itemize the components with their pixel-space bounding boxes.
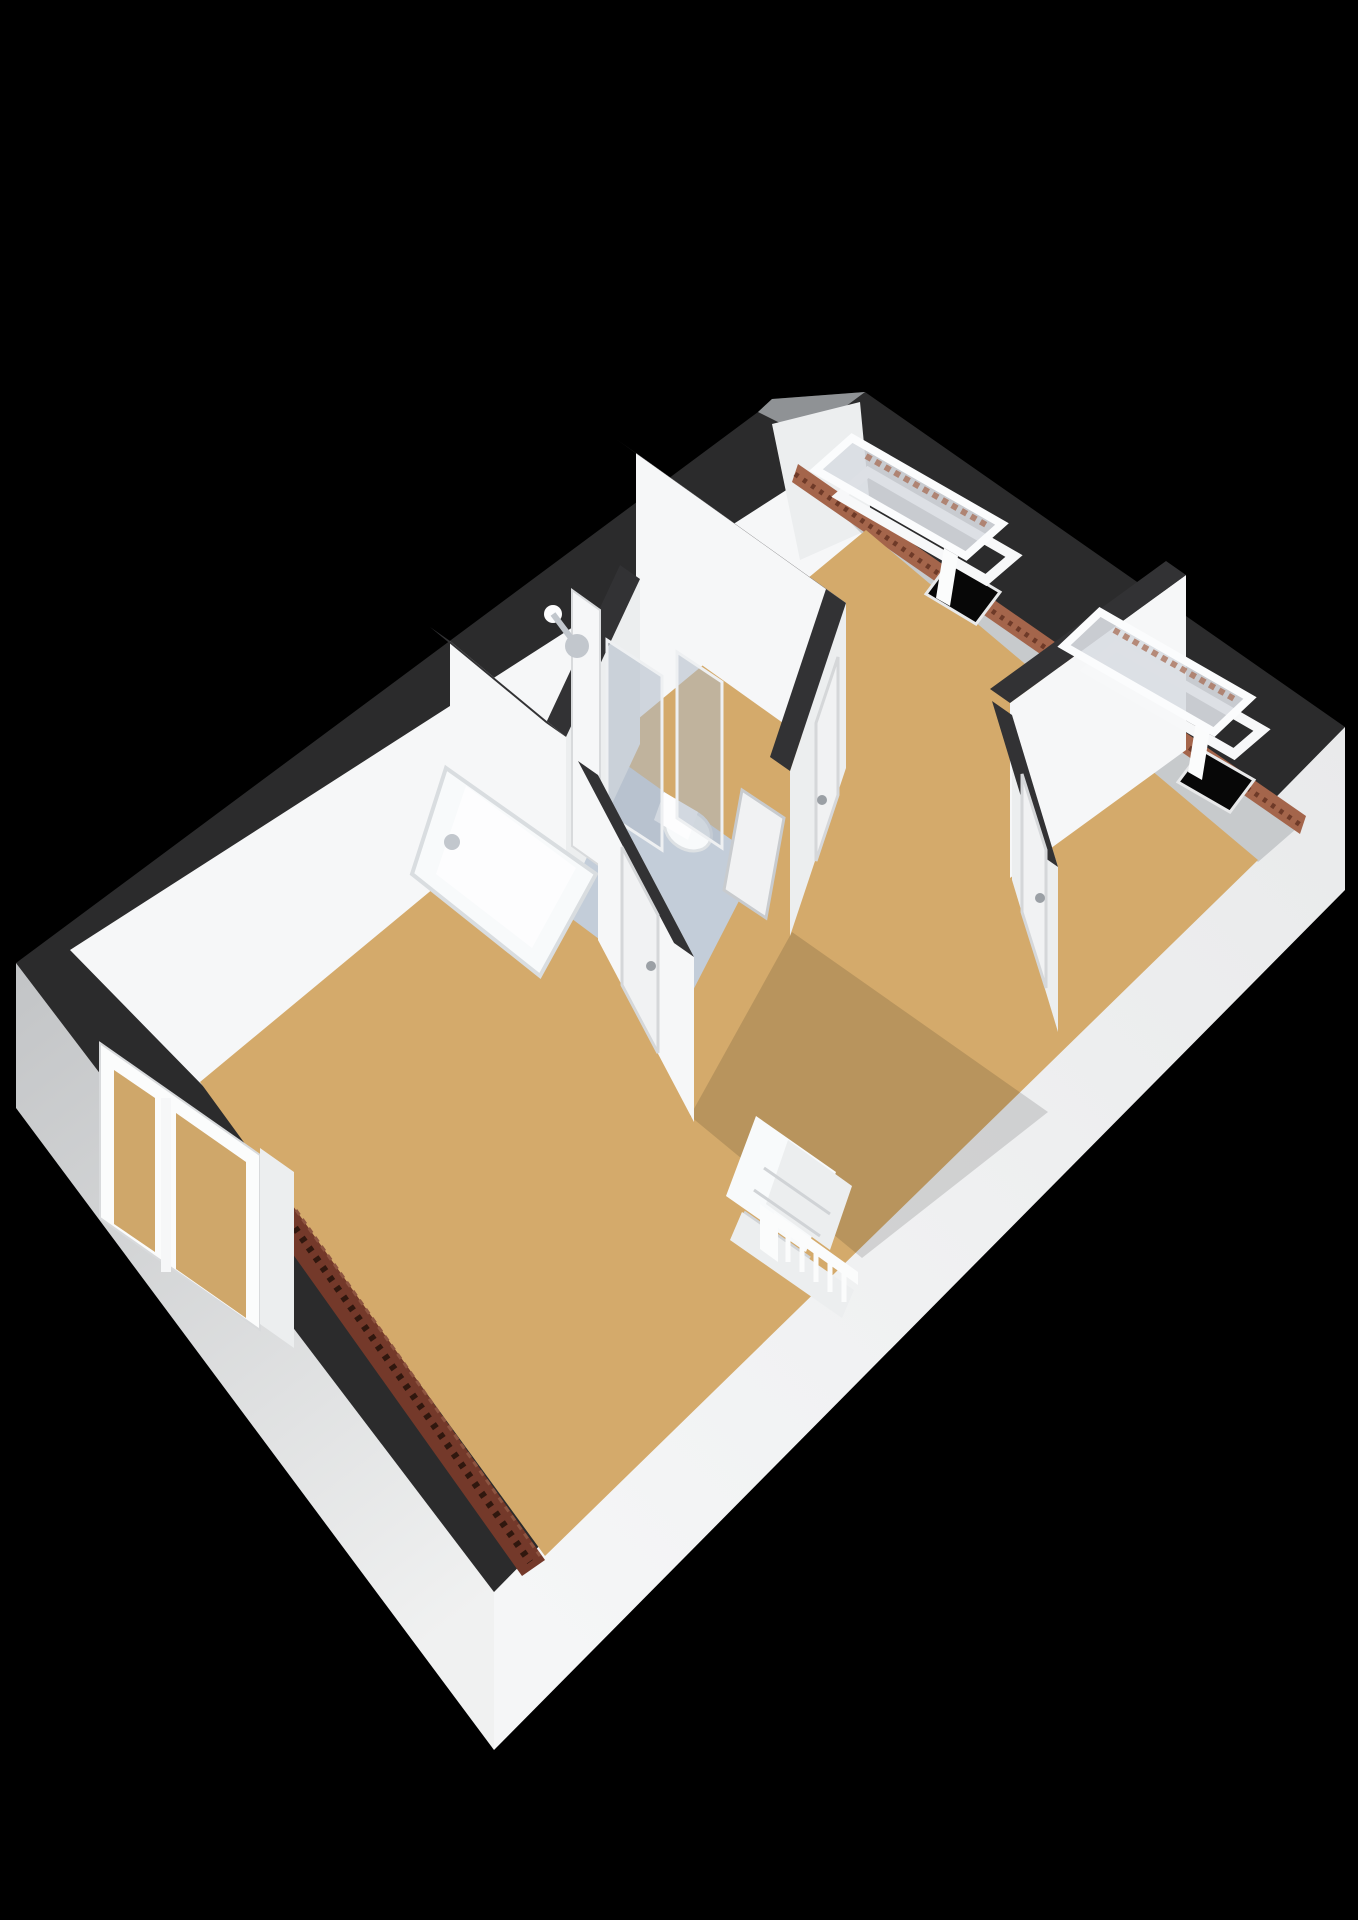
door-handle [1035, 893, 1045, 903]
door-handle [646, 961, 656, 971]
door-handle [817, 795, 827, 805]
bath-faucet [444, 834, 460, 850]
shower-stub-wall [572, 590, 600, 866]
floorplan-viewport [0, 0, 1358, 1920]
shower-glass-screen-2 [677, 652, 722, 848]
window-jamb-box [260, 1148, 294, 1348]
window-glass-left [114, 1070, 155, 1252]
floorplan-3d-canvas[interactable] [0, 0, 1358, 1920]
shower-head [565, 634, 589, 658]
